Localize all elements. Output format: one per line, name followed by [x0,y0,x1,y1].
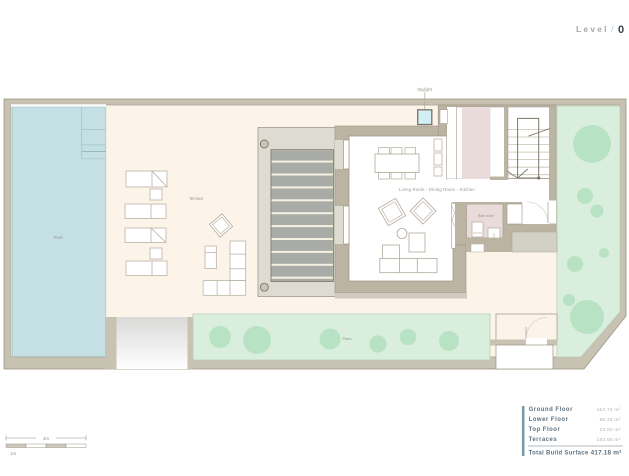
svg-text:Terraces: Terraces [529,437,558,443]
svg-text:Level: Level [576,24,609,34]
svg-text:Total Build Surface: Total Build Surface [529,451,589,457]
svg-text:Skylight: Skylight [417,87,432,92]
svg-text:Living Room - Dining Room -: Living Room - Dining Room - Kitchen [399,187,475,192]
svg-text:183.55 m²: 183.55 m² [597,437,621,443]
svg-text:80.33 m²: 80.33 m² [600,417,621,423]
svg-text:1m: 1m [10,451,17,456]
svg-text:4m: 4m [43,436,50,441]
svg-text:417.18 m²: 417.18 m² [591,450,622,457]
svg-text:152.72 m²: 152.72 m² [597,407,621,413]
svg-text:Lower Floor: Lower Floor [529,417,569,423]
svg-text:Terrace: Terrace [189,196,204,201]
svg-text:0: 0 [618,24,624,36]
svg-text:Pool: Pool [54,235,63,240]
svg-text:23.50 m²: 23.50 m² [600,427,621,433]
svg-text:Bath toilet: Bath toilet [478,214,494,218]
svg-text:Top Floor: Top Floor [529,427,561,433]
svg-text:Ground Floor: Ground Floor [529,407,573,413]
svg-text:Patio: Patio [342,336,352,341]
